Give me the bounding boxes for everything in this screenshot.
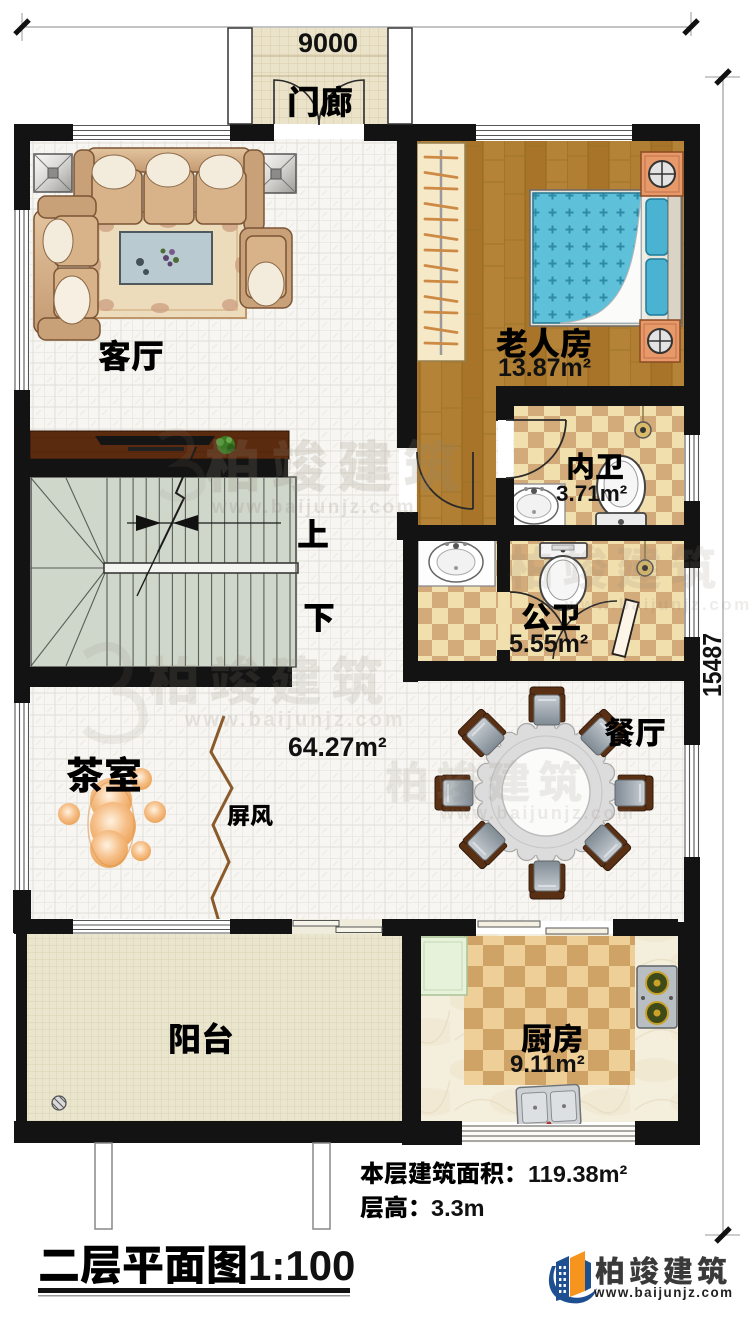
svg-text:119.38m²: 119.38m² [528,1161,627,1187]
svg-text:www.baijunjz.com: www.baijunjz.com [439,803,635,823]
svg-text:5.55m²: 5.55m² [509,630,588,658]
svg-text:www.baijunjz.com: www.baijunjz.com [564,595,750,614]
svg-text:www.baijunjz.com: www.baijunjz.com [184,709,406,731]
svg-text:3.71m²: 3.71m² [556,481,628,506]
svg-text:1:100: 1:100 [248,1242,355,1289]
svg-text:www.baijunjz.com: www.baijunjz.com [593,1285,734,1300]
svg-text:9000: 9000 [298,28,358,58]
svg-text:9.11m²: 9.11m² [510,1051,585,1078]
svg-text:15487: 15487 [697,633,727,697]
svg-text:3.3m: 3.3m [431,1195,485,1221]
svg-text:64.27m²: 64.27m² [288,732,387,762]
svg-text:www.baijunjz.com: www.baijunjz.com [211,497,416,518]
svg-text:13.87m²: 13.87m² [498,354,591,382]
